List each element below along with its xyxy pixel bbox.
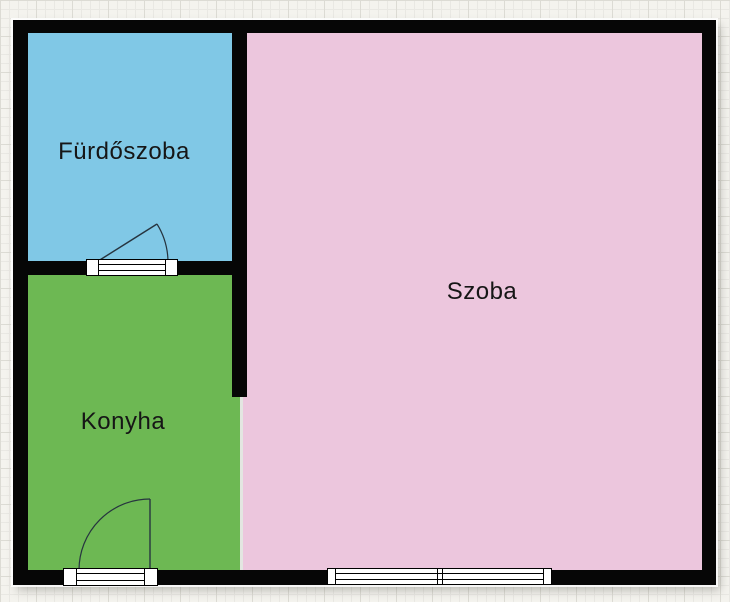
door-frame-post	[86, 259, 99, 276]
room-label-kitchen: Konyha	[81, 408, 165, 436]
door-frame-post	[63, 568, 77, 586]
bathroom-door	[86, 259, 178, 276]
kitchen-living-open-boundary	[240, 397, 243, 570]
window-frame-post	[543, 568, 552, 585]
kitchen-door	[63, 568, 158, 586]
door-frame-post	[144, 568, 158, 586]
room-label-living: Szoba	[447, 278, 518, 306]
door-sill-lines	[99, 264, 165, 271]
window-frame-post	[327, 568, 336, 585]
graph-paper-background: Fürdőszoba Szoba Konyha	[0, 0, 730, 602]
door-sill-lines	[77, 573, 144, 581]
room-kitchen-extension	[232, 397, 240, 570]
door-frame-post	[165, 259, 178, 276]
building-walls	[13, 20, 716, 585]
main-window	[327, 568, 552, 585]
window-glass-lines	[336, 573, 543, 580]
room-label-bathroom: Fürdőszoba	[58, 138, 190, 166]
room-living-extension	[243, 397, 247, 570]
